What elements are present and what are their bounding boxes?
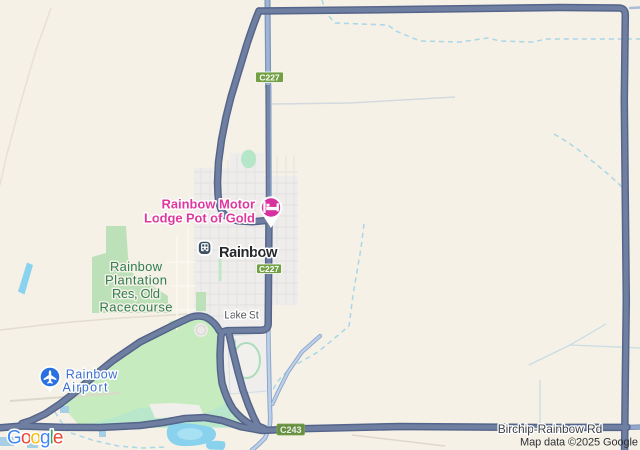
svg-text:C227: C227 bbox=[259, 72, 280, 82]
svg-text:Lake St: Lake St bbox=[224, 310, 259, 322]
svg-text:Map data ©2025 Google: Map data ©2025 Google bbox=[520, 437, 638, 449]
svg-text:C227: C227 bbox=[259, 264, 279, 274]
svg-text:Lodge Pot of Gold: Lodge Pot of Gold bbox=[144, 211, 255, 226]
svg-text:Google: Google bbox=[7, 428, 64, 449]
svg-text:Birchip-Rainbow Rd: Birchip-Rainbow Rd bbox=[498, 422, 603, 436]
svg-text:Rainbow: Rainbow bbox=[66, 368, 118, 382]
svg-text:Rainbow: Rainbow bbox=[219, 245, 278, 261]
svg-text:Racecourse: Racecourse bbox=[100, 300, 173, 315]
svg-text:Rainbow Motor: Rainbow Motor bbox=[162, 197, 256, 212]
svg-text:Airport: Airport bbox=[63, 381, 109, 395]
svg-text:C243: C243 bbox=[280, 425, 302, 435]
